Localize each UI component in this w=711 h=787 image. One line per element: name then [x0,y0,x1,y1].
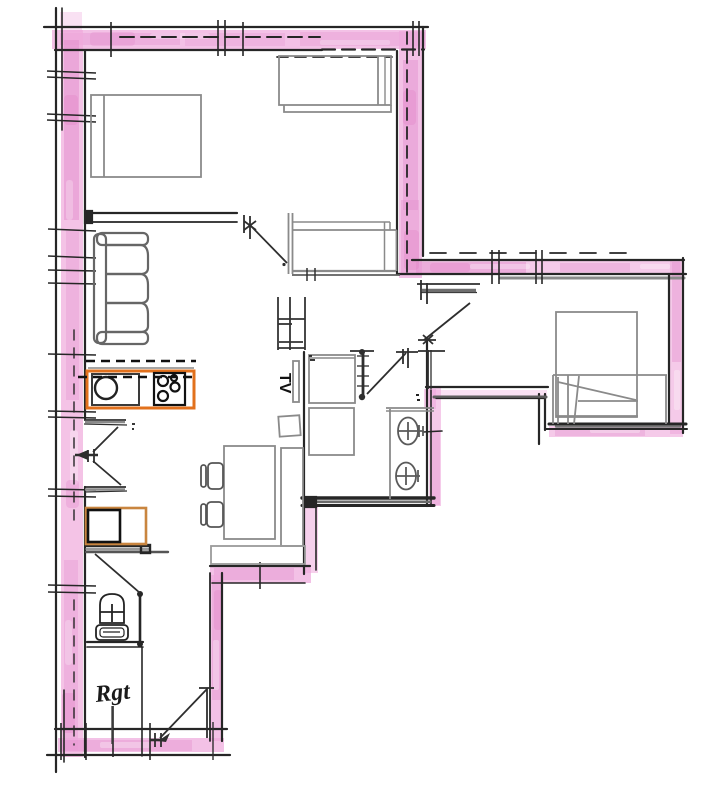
svg-text:Rgt: Rgt [93,678,133,708]
svg-text:TV: TV [276,373,293,394]
